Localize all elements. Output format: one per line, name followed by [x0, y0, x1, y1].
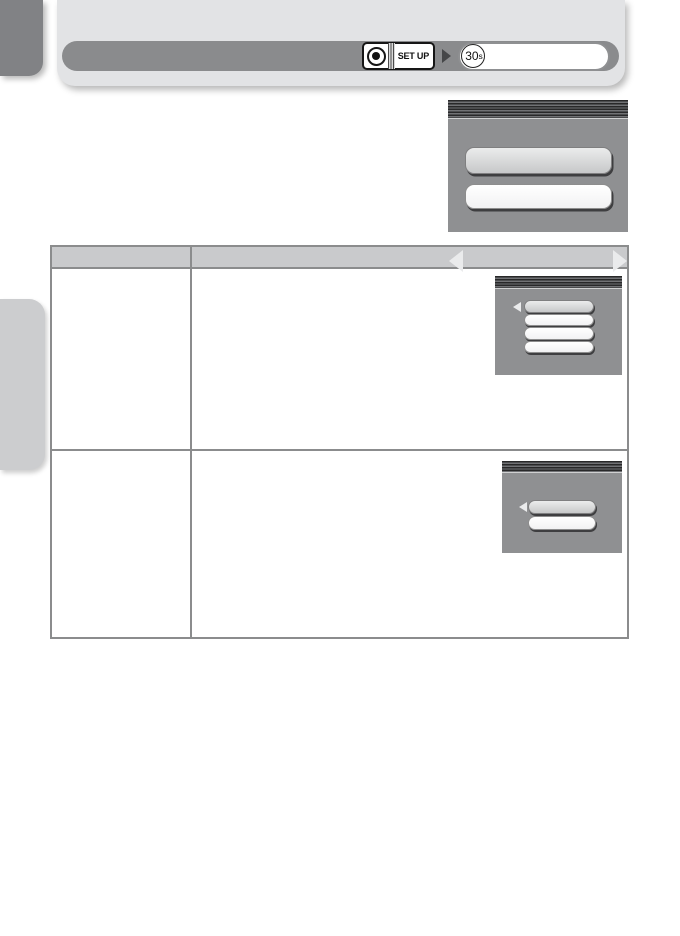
menu-option-pill-selected — [465, 147, 612, 174]
menu-option-pill — [528, 516, 596, 530]
page-edge-tab-light — [0, 299, 45, 470]
control-strip: SET UP 30 s — [62, 41, 619, 71]
monitor-menu-row1 — [495, 276, 622, 375]
setting-value-unit: s — [479, 51, 483, 61]
dial-knurl-icon — [388, 43, 395, 69]
menu-option-list — [448, 119, 628, 209]
table-header-cell-option — [52, 247, 192, 269]
setting-value-pill: 30 s — [458, 42, 610, 71]
menu-option-pill-selected — [524, 300, 594, 313]
menu-option-list — [502, 473, 622, 530]
table-row1-option-cell — [52, 269, 192, 451]
menu-option-list — [495, 289, 622, 353]
table-row2-option-cell — [52, 451, 192, 637]
monitor-menu-setup — [448, 100, 628, 232]
setting-value-circle: 30 s — [461, 44, 485, 68]
menu-option-pill — [524, 327, 594, 340]
setup-mode-dial-icon: SET UP — [362, 42, 435, 70]
menu-title-stripes — [502, 461, 622, 473]
dial-label: SET UP — [398, 51, 429, 61]
setting-value-number: 30 — [465, 49, 478, 63]
arrow-right-icon — [442, 49, 451, 63]
menu-title-stripes — [495, 276, 622, 289]
dial-knob-icon — [367, 47, 386, 66]
menu-option-pill — [465, 184, 612, 209]
manual-page: SET UP 30 s — [0, 0, 680, 936]
menu-option-pill — [524, 341, 594, 354]
menu-option-pill — [524, 314, 594, 327]
menu-option-pill-selected — [528, 500, 596, 514]
menu-title-stripes — [448, 100, 628, 119]
monitor-menu-row2 — [502, 461, 622, 553]
quick-reference-card: SET UP 30 s — [57, 0, 625, 86]
page-edge-tab-dark — [0, 0, 43, 76]
table-header-cell-description — [192, 247, 627, 269]
